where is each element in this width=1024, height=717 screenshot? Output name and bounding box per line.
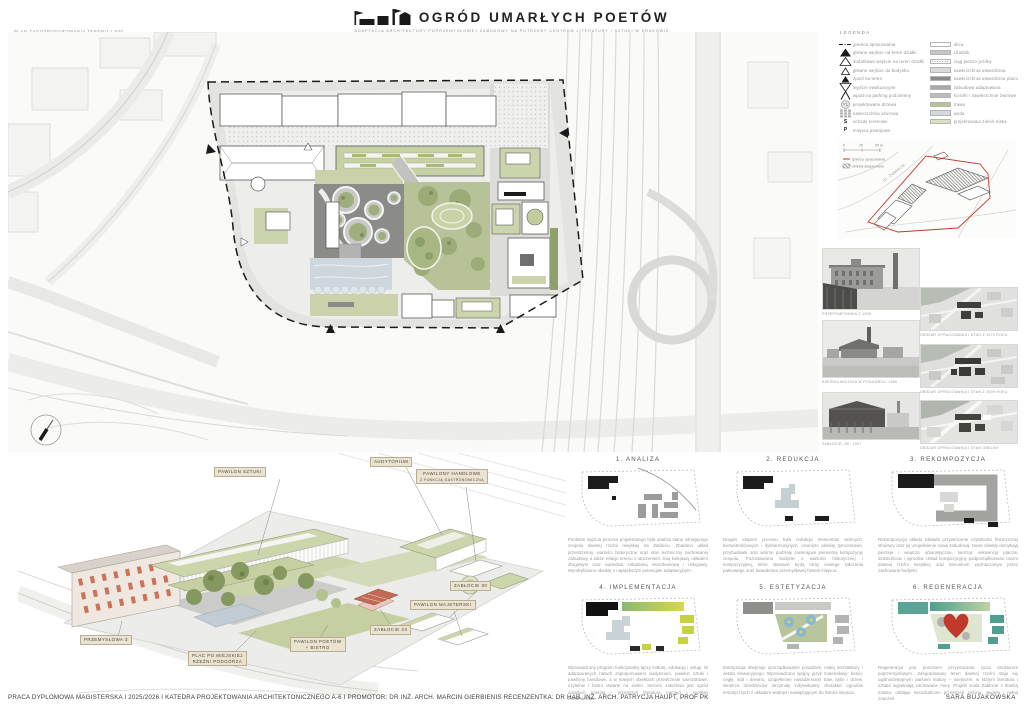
step-title: 4. IMPLEMENTACJA bbox=[568, 584, 708, 591]
aerial-caption: OBSZAR OPRACOWANIA I STAN Z 1970 ROKU bbox=[920, 333, 1018, 337]
surface-swatch bbox=[930, 85, 951, 90]
east-garden bbox=[404, 182, 490, 290]
surface-swatch bbox=[930, 110, 951, 115]
process-step-redukcja: 2. REDUKCJA Drugim etapem procesu była r… bbox=[723, 456, 863, 575]
diagram-redukcja bbox=[723, 466, 863, 534]
step-text: Drugim etapem procesu była redukcja elem… bbox=[723, 537, 863, 575]
axon-label-przemyslowa-3: PRZEMYSŁOWA 3 bbox=[80, 635, 132, 645]
historic-photo-3: ZABŁOCIE, OK. 1907 bbox=[822, 392, 920, 446]
legend-title: LEGENDA bbox=[840, 30, 1018, 35]
diagram-regeneracja bbox=[878, 594, 1018, 662]
svg-text:obiekty adaptowane: obiekty adaptowane bbox=[852, 165, 884, 169]
axonometric-view: PAWILON SZTUKI AUDYTORIUM PAWILONY HANDL… bbox=[18, 453, 566, 697]
process-step-rekompozycja: 3. REKOMPOZYCJA Rekompozycja układu zakł… bbox=[878, 456, 1018, 575]
step-text: Estetyzacja obejmuje uporządkowanie posa… bbox=[723, 665, 863, 696]
design-process-panel: 1. ANALIZA Punktem wyjścia procesu proje… bbox=[568, 456, 1018, 702]
surface-swatch bbox=[930, 50, 951, 55]
stairs-icon: S bbox=[838, 119, 853, 125]
dotted-paving bbox=[226, 124, 548, 148]
map-key-buildings-marker bbox=[843, 164, 850, 168]
parking-icon: P bbox=[838, 127, 853, 133]
step-title: 3. REKOMPOZYCJA bbox=[878, 456, 1018, 463]
photo-caption: ZABŁOCIE, OK. 1907 bbox=[822, 442, 920, 446]
page-title: OGRÓD UMARŁYCH POETÓW bbox=[419, 10, 669, 25]
aerial-caption: OBSZAR OPRACOWANIA I STAN Z 2009 ROKU bbox=[920, 390, 1018, 394]
legend-surfaces-column: ulica chodnik ciąg pieszo-jezdny nawierz… bbox=[930, 40, 1018, 135]
aerial-map-2009: OBSZAR OPRACOWANIA I STAN Z 2009 ROKU bbox=[920, 344, 1018, 394]
axon-label-retail-pavilions: PAWILONY HANDLOWEZ FUNKCJĄ GASTRONOMICZN… bbox=[416, 469, 488, 484]
axon-label-zablocie-23: ZABŁOCIE 23 bbox=[370, 625, 411, 635]
grid-paving-icon bbox=[838, 109, 853, 118]
historic-photo-1: PRZEPOMPOWNIA Z 1905 bbox=[822, 248, 920, 316]
svg-text:0: 0 bbox=[843, 144, 845, 148]
step-title: 2. REDUKCJA bbox=[723, 456, 863, 463]
water-pool bbox=[310, 258, 398, 316]
surface-swatch bbox=[930, 119, 951, 124]
surface-swatch bbox=[930, 102, 951, 107]
step-title: 5. ESTETYZACJA bbox=[723, 584, 863, 591]
diagram-analiza bbox=[568, 466, 708, 534]
diagram-estetyzacja bbox=[723, 594, 863, 662]
photo-caption: PRZEPOMPOWNIA Z 1905 bbox=[822, 312, 920, 316]
author-name: SARA BUJAKOWSKA bbox=[946, 694, 1016, 701]
surface-swatch bbox=[930, 67, 951, 72]
surface-swatch bbox=[930, 59, 951, 64]
surface-swatch bbox=[930, 76, 951, 81]
existing-halls-north bbox=[220, 92, 496, 126]
thesis-credits: PRACA DYPLOMOWA MAGISTERSKA I 2025/2026 … bbox=[8, 694, 709, 701]
svg-text:granica opracowania: granica opracowania bbox=[852, 158, 885, 162]
step-title: 1. ANALIZA bbox=[568, 456, 708, 463]
process-step-regeneracja: 6. REGENERACJA Regeneracja jest procesem… bbox=[878, 584, 1018, 703]
axon-label-art-pavilion: PAWILON SZTUKI bbox=[214, 467, 266, 477]
axon-label-zablocie-30: ZABŁOCIE 30 bbox=[450, 581, 491, 591]
surface-swatch bbox=[930, 42, 951, 47]
factory-silhouette-logo-icon bbox=[355, 7, 411, 27]
process-step-estetyzacja: 5. ESTETYZACJA Estetyzacja obejmuje upor… bbox=[723, 584, 863, 703]
axon-label-auditorium: AUDYTORIUM bbox=[370, 457, 412, 467]
historic-photo-2: RZEŹNIA MIEJSKA W PODGÓRZU, 1900 bbox=[822, 320, 920, 384]
aerial-map-1970: OBSZAR OPRACOWANIA I STAN Z 1970 ROKU bbox=[920, 287, 1018, 337]
aerial-map-current: OBSZAR OPRACOWANIA I STAN OBECNY bbox=[920, 400, 1018, 450]
diagram-implementacja bbox=[568, 594, 708, 662]
axon-label-poets-pavilion: PAWILON POETÓW+ BISTRO bbox=[290, 637, 346, 652]
legend-symbols-column: granica opracowania główne wejście na te… bbox=[838, 40, 926, 135]
location-map: 0 25 50 m granica opracowania obiekty ad… bbox=[838, 140, 1016, 238]
step-text: Rekompozycja układu zakłada przywrócenie… bbox=[878, 537, 1018, 575]
process-step-implementacja: 4. IMPLEMENTACJA Wprowadzony program fun… bbox=[568, 584, 708, 703]
surface-swatch bbox=[930, 93, 951, 98]
aerial-caption: OBSZAR OPRACOWANIA I STAN OBECNY bbox=[920, 446, 1018, 450]
axon-label-slaughterhouse-square: PLAC PO MIEJSKIEJRZEŹNI PODGÓRZA bbox=[188, 651, 247, 666]
legend-panel: LEGENDA granica opracowania główne wejśc… bbox=[838, 30, 1018, 135]
step-title: 6. REGENERACJA bbox=[878, 584, 1018, 591]
axonometric-drawing bbox=[18, 453, 566, 697]
svg-text:50 m: 50 m bbox=[875, 144, 883, 148]
site-plan-drawing bbox=[8, 32, 818, 452]
axon-label-master-pavilion: PAWILON MAJSTERSKI bbox=[410, 600, 476, 610]
svg-text:25: 25 bbox=[859, 144, 863, 148]
central-garden-plaza bbox=[314, 184, 404, 260]
photo-caption: RZEŹNIA MIEJSKA W PODGÓRZU, 1900 bbox=[822, 380, 920, 384]
step-text: Punktem wyjścia procesu projektowego był… bbox=[568, 537, 708, 575]
diagram-rekompozycja bbox=[878, 466, 1018, 534]
process-step-analiza: 1. ANALIZA Punktem wyjścia procesu proje… bbox=[568, 456, 708, 575]
board-header: OGRÓD UMARŁYCH POETÓW ADAPTACJA ARCHITEK… bbox=[354, 7, 669, 33]
